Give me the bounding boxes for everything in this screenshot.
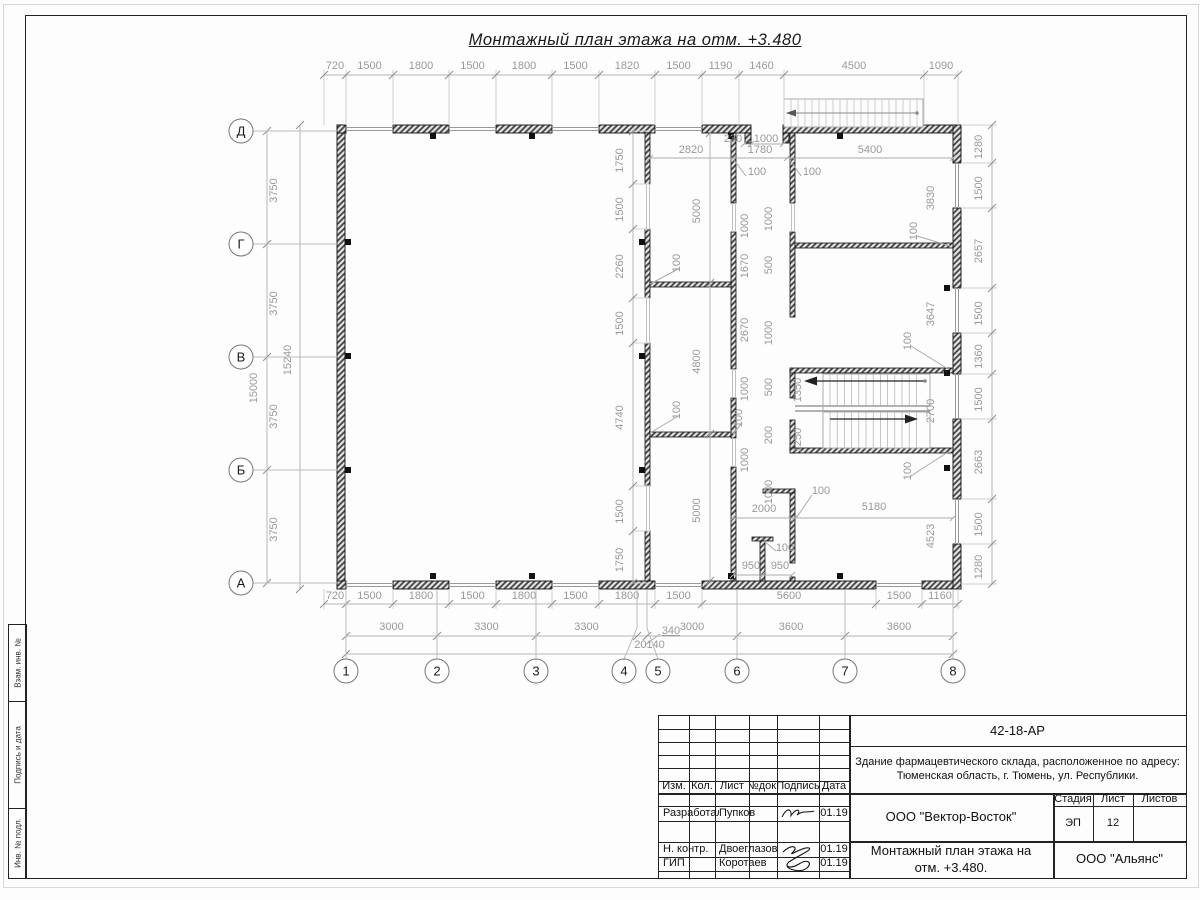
dim-label: 2700	[925, 399, 937, 423]
dim-label: 3750	[268, 291, 280, 315]
grid-col-label-6: 6	[733, 664, 740, 679]
grid-row-label-Г: Г	[237, 237, 244, 252]
dim-label: 1500	[666, 60, 690, 72]
dim-label: 230	[724, 133, 742, 145]
dim-label: 5600	[777, 590, 801, 602]
dim-label: 5000	[691, 199, 703, 223]
dim-label: 1250	[792, 428, 804, 452]
dim-label: 1160	[928, 590, 952, 602]
dim-label: 100	[803, 166, 821, 178]
dim-label: 4500	[842, 60, 866, 72]
dim-label: 1500	[357, 590, 381, 602]
dim-label: 1800	[615, 590, 639, 602]
dim-label: 5400	[858, 144, 882, 156]
tb-date-gip: 01.19	[819, 857, 849, 871]
dim-label: 3300	[474, 621, 498, 633]
dim-label: 720	[326, 60, 344, 72]
dim-label: 720	[326, 590, 344, 602]
dim-label: 1780	[748, 144, 772, 156]
grid-col-label-1: 1	[342, 664, 349, 679]
tb-description-line1: Здание фармацевтического склада, располо…	[855, 756, 1180, 770]
dim-label: 15000	[248, 373, 260, 404]
dim-label: 100	[671, 401, 683, 419]
dim-label: 4800	[691, 349, 703, 373]
tb-drawing-title: Монтажный план этажа на отм. +3.480.	[849, 841, 1053, 878]
dim-label: 1750	[614, 148, 626, 172]
tb-date-developer: 01.19	[819, 806, 849, 821]
dim-label: 3830	[925, 186, 937, 210]
dim-label: 4523	[925, 524, 937, 548]
dim-label: 1500	[973, 512, 985, 536]
dim-label: 3300	[574, 621, 598, 633]
stair-flight-upper	[823, 374, 930, 406]
dim-label: 1000	[739, 448, 751, 472]
dim-label: 1500	[887, 590, 911, 602]
dim-label: 5180	[862, 501, 886, 513]
dim-label: 2657	[973, 239, 985, 263]
grid-col-label-3: 3	[532, 664, 539, 679]
tb-name-gip: Коротаев	[715, 857, 781, 871]
dim-label: 2820	[679, 144, 703, 156]
dim-label: 3000	[379, 621, 403, 633]
dim-label: 2260	[614, 254, 626, 278]
dim-label: 1820	[615, 60, 639, 72]
tb-sheet-value: 12	[1093, 806, 1133, 841]
tb-header-podpis: Подпись	[777, 781, 819, 793]
dim-label: 950	[742, 560, 760, 572]
dim-label: 1670	[739, 254, 751, 278]
dim-label: 3647	[925, 302, 937, 326]
dim-label: 1000	[763, 321, 775, 345]
dim-label: 2000	[752, 503, 776, 515]
dim-label: 1350	[792, 378, 804, 402]
dim-label: 340	[662, 625, 680, 637]
stair-flight-lower	[823, 412, 930, 448]
drawing-sheet: { "title": "Монтажный план этажа на отм.…	[0, 0, 1200, 900]
dim-label: 1500	[357, 60, 381, 72]
tb-stage-value: ЭП	[1053, 806, 1093, 841]
dim-label: 1000	[763, 207, 775, 231]
side-stamp-cell-podpis: Подпись и дата	[9, 701, 26, 809]
dimension-chains	[263, 71, 996, 658]
dim-label: 2663	[973, 450, 985, 474]
tb-role-ncontr: Н. контр.	[659, 842, 719, 857]
dim-label: 1500	[666, 590, 690, 602]
dim-label: 100	[902, 332, 914, 350]
dim-label: 1500	[614, 499, 626, 523]
door-openings	[647, 184, 795, 531]
dim-label: 1500	[614, 197, 626, 221]
tb-role-developer: Разработал	[659, 806, 719, 821]
dim-label: 1460	[749, 60, 773, 72]
dim-label: 200	[763, 426, 775, 444]
dim-label: 3600	[887, 621, 911, 633]
dim-label: 20140	[634, 639, 665, 651]
dim-label: 500	[763, 256, 775, 274]
grid-row-label-Д: Д	[237, 124, 246, 139]
dim-label: 1280	[973, 555, 985, 579]
tb-header-kol: Кол.	[689, 781, 715, 793]
dim-label: 1000	[739, 214, 751, 238]
tb-drawing-title-line2: отм. +3.480.	[915, 860, 988, 876]
dim-label: 100	[671, 254, 683, 272]
dim-label: 1500	[460, 60, 484, 72]
grid-row-label-В: В	[237, 350, 246, 365]
tb-org: ООО "Альянс"	[1053, 841, 1186, 878]
dim-label: 15240	[282, 345, 294, 376]
tb-company: ООО "Вектор-Восток"	[849, 793, 1053, 841]
dim-label: 5000	[691, 498, 703, 522]
dim-label: 1500	[563, 590, 587, 602]
tb-header-list: Лист	[715, 781, 749, 793]
grid-col-label-4: 4	[620, 664, 627, 679]
dim-label: 100	[908, 222, 920, 240]
dim-label: 1500	[973, 387, 985, 411]
tb-role-gip: ГИП	[659, 857, 719, 871]
tb-sheets-label: Листов	[1133, 793, 1186, 806]
dim-label: 1000	[763, 480, 775, 504]
tb-description-line2: Тюменская область, г. Тюмень, ул. Респуб…	[897, 770, 1139, 784]
dim-label: 1000	[754, 133, 778, 145]
extension-lines	[324, 70, 997, 609]
signature-ncontr-gip	[777, 842, 819, 872]
dim-label: 1280	[973, 135, 985, 159]
dim-label: 1800	[409, 590, 433, 602]
side-stamp-cell-vzam: Взам. инв. №	[9, 625, 26, 702]
tb-date-ncontr: 01.19	[819, 842, 849, 857]
tb-project-description: Здание фармацевтического склада, располо…	[849, 746, 1186, 793]
exterior-stair-path-start	[915, 111, 918, 114]
dim-label: 1500	[460, 590, 484, 602]
tb-sheets-value	[1133, 806, 1186, 841]
dim-label: 1750	[614, 548, 626, 572]
dim-label: 1190	[709, 60, 733, 72]
dim-label: 950	[771, 560, 789, 572]
stair-direction-arrows	[804, 377, 927, 424]
dim-label: 1500	[973, 176, 985, 200]
dim-label: 4740	[614, 405, 626, 429]
dim-label: 3600	[779, 621, 803, 633]
dim-label: 100	[733, 409, 745, 427]
dim-label: 3750	[268, 404, 280, 428]
tb-header-izm: Изм.	[659, 781, 689, 793]
tb-stage-label: Стадия	[1053, 793, 1093, 806]
dim-label: 1500	[614, 311, 626, 335]
dim-label: 100	[748, 166, 766, 178]
dim-label: 100	[902, 462, 914, 480]
dim-label: 1800	[409, 60, 433, 72]
signature-developer	[777, 806, 819, 821]
dim-label: 500	[763, 378, 775, 396]
dim-label: 2670	[739, 318, 751, 342]
grid-col-label-5: 5	[654, 664, 661, 679]
dim-label: 3000	[680, 621, 704, 633]
dim-label: 100	[812, 485, 830, 497]
grid-col-label-2: 2	[433, 664, 440, 679]
side-stamp: Взам. инв. № Подпись и дата Инв. № подл.	[8, 624, 27, 879]
dim-label: 3750	[268, 517, 280, 541]
tb-drawing-title-line1: Монтажный план этажа на	[871, 843, 1032, 859]
dim-label: 1090	[929, 60, 953, 72]
tb-sheet-label: Лист	[1093, 793, 1133, 806]
title-block: Изм. Кол. Лист №док. Подпись Дата Разраб…	[658, 715, 1186, 878]
dimension-labels: 7201500180015001800150018201500119014604…	[248, 60, 985, 651]
tb-header-data: Дата	[819, 781, 849, 793]
grid-col-label-7: 7	[841, 664, 848, 679]
tb-doc-number: 42-18-АР	[849, 716, 1186, 746]
tb-header-ndok: №док.	[749, 781, 777, 793]
tb-name-developer: Пупков	[715, 806, 781, 821]
grid-col-label-8: 8	[949, 664, 956, 679]
side-stamp-cell-inv: Инв. № подл.	[9, 808, 26, 877]
dim-label: 1500	[973, 301, 985, 325]
dim-label: 1500	[563, 60, 587, 72]
grid-row-label-А: А	[237, 576, 246, 591]
tb-name-ncontr: Двоеглазов	[715, 842, 781, 857]
dim-label: 1000	[739, 377, 751, 401]
dim-label: 100	[776, 542, 794, 554]
dim-label: 1800	[512, 590, 536, 602]
dim-label: 1800	[512, 60, 536, 72]
dim-label: 3750	[268, 178, 280, 202]
dim-label: 1360	[973, 344, 985, 368]
grid-row-label-Б: Б	[237, 463, 246, 478]
